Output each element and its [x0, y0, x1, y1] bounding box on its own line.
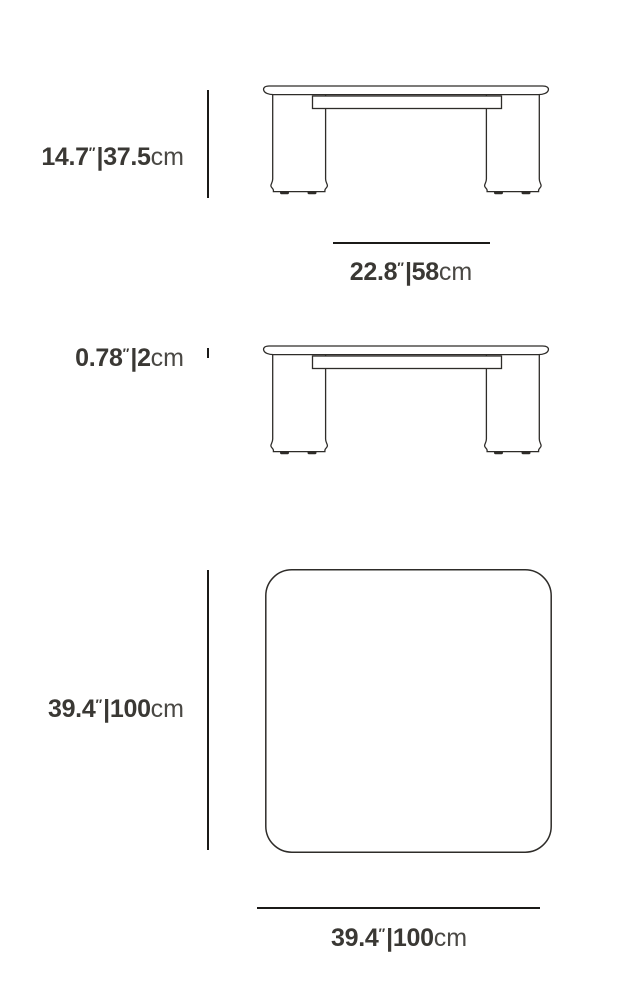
metric-unit: cm [439, 258, 472, 286]
depth-inches: 39.4 [48, 695, 95, 723]
table-side-view-1 [262, 85, 550, 196]
height-metric: 37.5 [103, 143, 150, 171]
metric-unit: cm [151, 143, 184, 171]
height-inches: 14.7 [41, 143, 88, 171]
width-dimension-label: 39.4″|100cm [249, 918, 549, 953]
tabletop-outline [266, 570, 551, 852]
thickness-inches: 0.78 [75, 344, 122, 372]
depth-dimension-label: 39.4″|100cm [0, 689, 184, 724]
depth-dimension-line [207, 570, 209, 850]
metric-unit: cm [434, 924, 467, 952]
inch-mark: ″ [378, 925, 384, 941]
leg-span-dimension-label: 22.8″|58cm [261, 252, 561, 287]
width-inches: 39.4 [331, 924, 378, 952]
separator: | [405, 258, 412, 286]
thickness-dimension-label: 0.78″|2cm [0, 338, 184, 373]
table-apron [313, 356, 502, 369]
inch-mark: ″ [123, 345, 129, 361]
thickness-dimension-tick [207, 348, 209, 358]
metric-unit: cm [151, 344, 184, 372]
table-apron [313, 96, 502, 109]
table-top-view [265, 569, 552, 853]
width-dimension-line [257, 907, 540, 909]
separator: | [386, 924, 393, 952]
leg-span-inches: 22.8 [350, 258, 397, 286]
metric-unit: cm [151, 695, 184, 723]
tabletop-slab [264, 346, 549, 355]
leg-span-dimension-line [333, 242, 490, 244]
inch-mark: ″ [95, 696, 101, 712]
table-side-view-2 [262, 345, 550, 456]
inch-mark: ″ [397, 259, 403, 275]
leg-span-metric: 58 [412, 258, 439, 286]
height-dimension-line [207, 90, 209, 198]
thickness-metric: 2 [137, 344, 151, 372]
inch-mark: ″ [89, 144, 95, 160]
tabletop-slab [264, 86, 549, 95]
height-dimension-label: 14.7″|37.5cm [0, 137, 184, 172]
width-metric: 100 [393, 924, 434, 952]
dimensions-diagram: 14.7″|37.5cm 22.8″|58cm 0.78″|2cm [0, 0, 641, 1008]
depth-metric: 100 [110, 695, 151, 723]
separator: | [103, 695, 110, 723]
